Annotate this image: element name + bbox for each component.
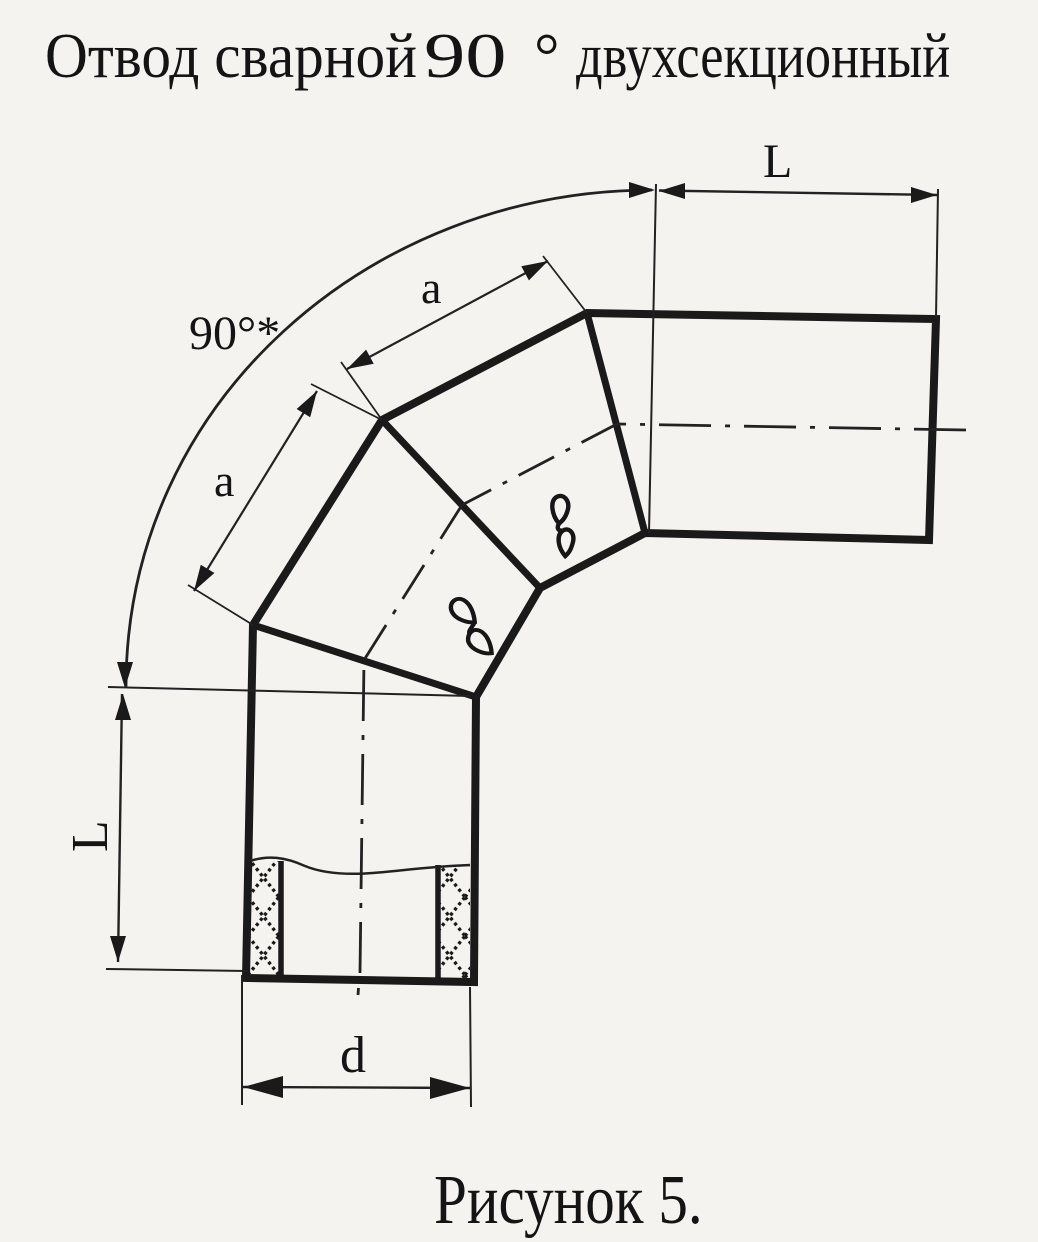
- svg-text:90°*: 90°*: [189, 307, 280, 360]
- svg-text:L: L: [763, 135, 792, 188]
- svg-text:двухсекционный: двухсекционный: [576, 20, 950, 91]
- svg-text:°: °: [534, 20, 560, 91]
- svg-text:Отвод сварной: Отвод сварной: [45, 21, 417, 92]
- svg-text:d: d: [340, 1027, 366, 1084]
- svg-text:a: a: [421, 262, 441, 313]
- svg-text:90: 90: [424, 20, 507, 91]
- svg-text:Рисунок 5.: Рисунок 5.: [434, 1161, 703, 1239]
- svg-text:a: a: [214, 455, 234, 506]
- svg-text:L: L: [62, 820, 119, 852]
